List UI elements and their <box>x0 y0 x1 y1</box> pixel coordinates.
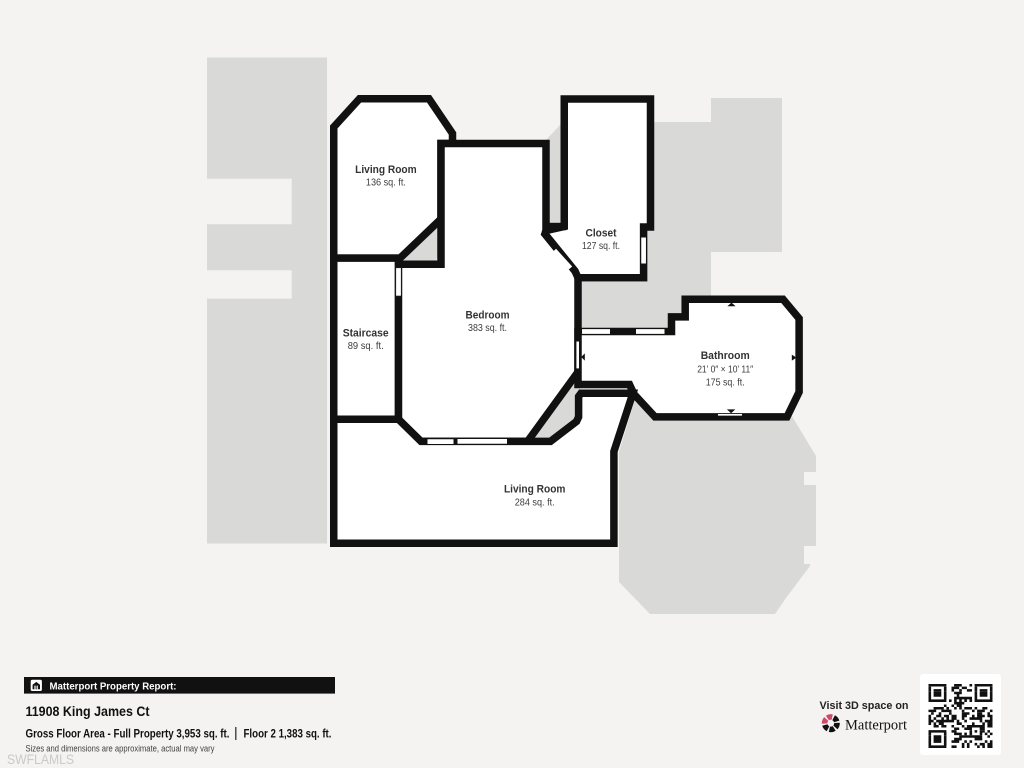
svg-text:Visit 3D space on: Visit 3D space on <box>820 700 909 712</box>
svg-text:SWFLAMLS: SWFLAMLS <box>7 751 74 767</box>
svg-text:89 sq. ft.: 89 sq. ft. <box>348 341 384 352</box>
svg-text:Matterport: Matterport <box>845 718 907 734</box>
svg-text:127 sq. ft.: 127 sq. ft. <box>582 241 620 252</box>
svg-text:Staircase: Staircase <box>343 328 389 340</box>
svg-text:Matterport Property Report:: Matterport Property Report: <box>50 680 177 692</box>
svg-text:Living Room: Living Room <box>355 164 417 176</box>
svg-text:175 sq. ft.: 175 sq. ft. <box>706 377 745 388</box>
svg-text:284 sq. ft.: 284 sq. ft. <box>515 498 555 509</box>
svg-text:Closet: Closet <box>586 228 617 240</box>
svg-text:21’ 0″ × 10’ 11″: 21’ 0″ × 10’ 11″ <box>697 364 753 375</box>
svg-text:Gross Floor Area - Full Proper: Gross Floor Area - Full Property 3,953 s… <box>26 727 230 741</box>
svg-text:136 sq. ft.: 136 sq. ft. <box>366 178 406 189</box>
svg-text:Bedroom: Bedroom <box>466 310 510 322</box>
svg-text:Living Room: Living Room <box>504 483 566 495</box>
svg-text:383 sq. ft.: 383 sq. ft. <box>468 323 507 334</box>
svg-text:Floor 2 1,383 sq. ft.: Floor 2 1,383 sq. ft. <box>244 727 332 741</box>
svg-text:11908 King James Ct: 11908 King James Ct <box>26 704 150 719</box>
svg-text:Bathroom: Bathroom <box>701 350 750 362</box>
